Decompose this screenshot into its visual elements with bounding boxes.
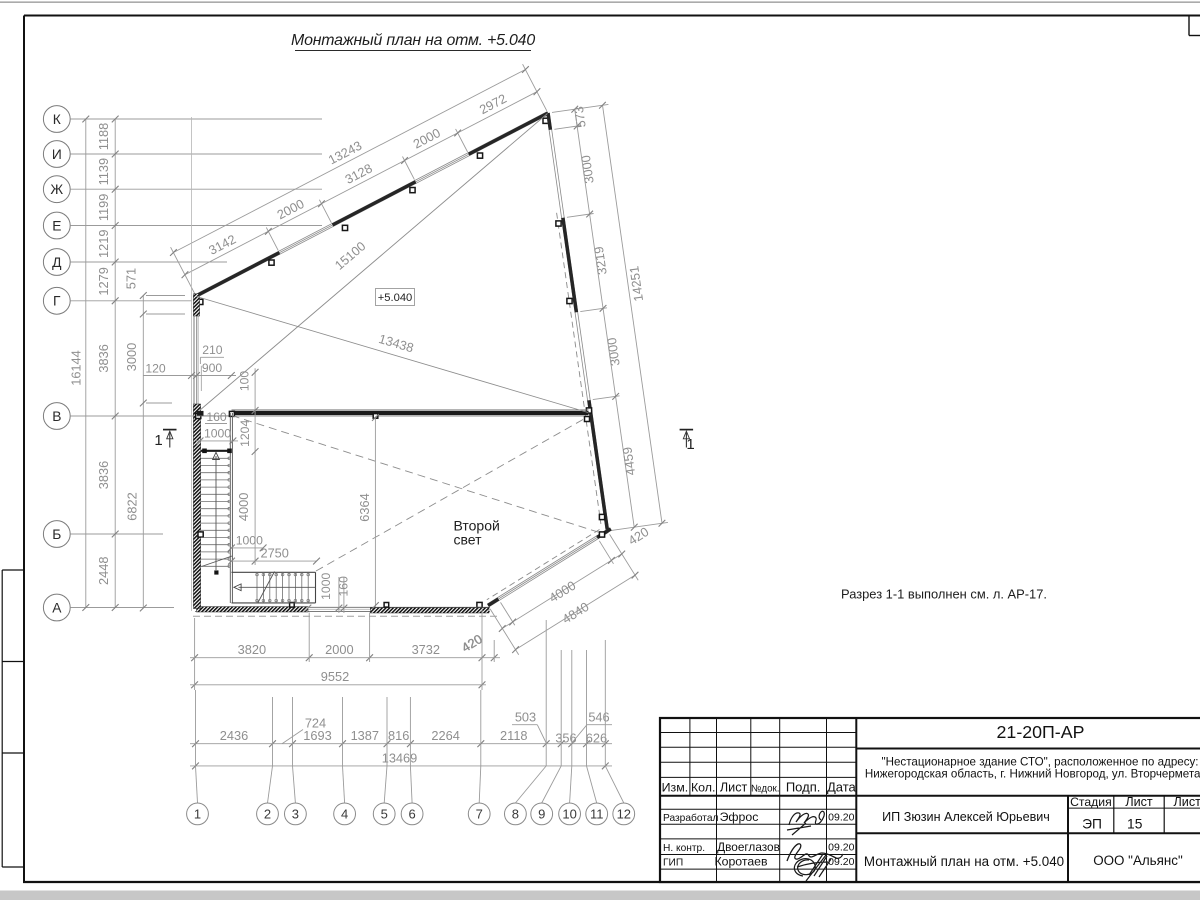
- svg-text:1: 1: [686, 436, 694, 453]
- svg-text:2264: 2264: [431, 728, 459, 743]
- svg-text:210: 210: [202, 343, 223, 357]
- svg-text:21-20П-АР: 21-20П-АР: [997, 722, 1085, 742]
- svg-text:К: К: [53, 112, 61, 127]
- svg-text:1279: 1279: [96, 267, 111, 295]
- svg-text:9: 9: [538, 806, 545, 821]
- svg-text:2000: 2000: [325, 642, 353, 657]
- svg-text:Нижегородская область, г. Нижн: Нижегородская область, г. Нижний Новгоро…: [865, 768, 1200, 781]
- svg-text:356: 356: [555, 731, 576, 746]
- svg-text:3836: 3836: [96, 344, 111, 372]
- svg-text:Разрез 1-1 выполнен см. л. АР-: Разрез 1-1 выполнен см. л. АР-17.: [841, 587, 1047, 602]
- svg-text:6: 6: [408, 806, 415, 821]
- svg-text:2118: 2118: [500, 728, 528, 743]
- svg-text:свет: свет: [454, 532, 483, 548]
- svg-text:И: И: [52, 147, 62, 162]
- svg-text:1204: 1204: [238, 420, 252, 447]
- svg-text:ЭП: ЭП: [1082, 817, 1102, 832]
- svg-text:Листов: Листов: [1174, 795, 1200, 809]
- svg-text:Эфрос: Эфрос: [720, 810, 759, 824]
- svg-text:160: 160: [206, 410, 227, 424]
- svg-text:В: В: [52, 409, 61, 424]
- svg-text:9552: 9552: [321, 669, 349, 684]
- svg-text:ГИП: ГИП: [663, 858, 683, 869]
- svg-text:1: 1: [194, 806, 201, 821]
- svg-text:1000: 1000: [204, 426, 231, 440]
- svg-text:Монтажный план на отм. +5.040: Монтажный план на отм. +5.040: [291, 32, 535, 49]
- svg-text:15: 15: [1127, 817, 1143, 832]
- svg-text:1188: 1188: [96, 123, 111, 151]
- svg-text:1387: 1387: [351, 728, 379, 743]
- svg-text:Изм.: Изм.: [662, 781, 689, 795]
- svg-text:724: 724: [305, 716, 326, 731]
- svg-text:Ж: Ж: [50, 182, 63, 197]
- svg-text:Лист: Лист: [1125, 795, 1153, 809]
- svg-text:1: 1: [154, 432, 162, 449]
- svg-text:503: 503: [515, 709, 536, 724]
- svg-text:120: 120: [145, 362, 166, 376]
- svg-text:2: 2: [264, 806, 271, 821]
- svg-text:2448: 2448: [96, 557, 111, 585]
- svg-text:573: 573: [571, 105, 589, 128]
- svg-text:Разработал: Разработал: [663, 812, 719, 824]
- svg-text:Кол.: Кол.: [691, 781, 716, 795]
- svg-text:12: 12: [617, 806, 631, 821]
- svg-text:3000: 3000: [124, 343, 139, 371]
- svg-text:4: 4: [341, 806, 348, 821]
- svg-text:7: 7: [476, 806, 483, 821]
- svg-text:8: 8: [512, 806, 519, 821]
- svg-text:6822: 6822: [125, 492, 140, 520]
- svg-text:ИП Зюзин Алексей Юрьевич: ИП Зюзин Алексей Юрьевич: [882, 810, 1050, 824]
- svg-text:5: 5: [381, 806, 388, 821]
- svg-text:160: 160: [337, 576, 351, 597]
- svg-text:Д: Д: [52, 255, 62, 270]
- svg-text:571: 571: [124, 268, 139, 289]
- svg-text:1000: 1000: [319, 573, 333, 600]
- svg-text:Стадия: Стадия: [1070, 795, 1112, 809]
- svg-text:09.20: 09.20: [828, 842, 854, 854]
- svg-text:10: 10: [562, 806, 576, 821]
- svg-text:4000: 4000: [236, 493, 251, 521]
- svg-text:А: А: [52, 600, 62, 615]
- svg-text:ООО "Альянс": ООО "Альянс": [1093, 853, 1183, 868]
- svg-text:1139: 1139: [96, 158, 111, 186]
- svg-text:3732: 3732: [412, 642, 440, 657]
- svg-text:Подп.: Подп.: [786, 780, 821, 795]
- svg-text:2436: 2436: [220, 728, 248, 743]
- svg-text:09.20: 09.20: [828, 811, 854, 823]
- svg-text:626: 626: [586, 730, 607, 745]
- svg-text:6364: 6364: [357, 493, 372, 521]
- svg-text:Е: Е: [52, 218, 61, 233]
- svg-text:3836: 3836: [96, 461, 111, 489]
- svg-text:100: 100: [237, 371, 251, 392]
- svg-text:3: 3: [292, 806, 299, 821]
- svg-text:546: 546: [588, 709, 609, 724]
- svg-text:Н. контр.: Н. контр.: [663, 843, 705, 854]
- svg-text:816: 816: [388, 728, 409, 743]
- svg-text:Г: Г: [53, 294, 61, 309]
- svg-text:09.20: 09.20: [828, 856, 854, 868]
- svg-text:+5.040: +5.040: [378, 292, 413, 304]
- svg-text:1199: 1199: [96, 194, 111, 222]
- svg-text:Монтажный план на отм. +5.040: Монтажный план на отм. +5.040: [864, 854, 1064, 869]
- svg-text:Коротаев: Коротаев: [714, 855, 767, 869]
- svg-text:Дата: Дата: [827, 780, 857, 795]
- svg-text:1219: 1219: [96, 230, 111, 258]
- svg-text:Лист: Лист: [720, 781, 748, 795]
- svg-text:№док.: №док.: [751, 784, 780, 795]
- svg-text:"Нестационарное здание СТО", р: "Нестационарное здание СТО", расположенн…: [881, 755, 1198, 768]
- svg-text:2750: 2750: [260, 546, 288, 561]
- svg-text:Б: Б: [52, 527, 61, 542]
- svg-text:16144: 16144: [69, 350, 84, 386]
- svg-text:3820: 3820: [238, 642, 266, 657]
- svg-text:Двоеглазов: Двоеглазов: [717, 840, 780, 854]
- svg-text:11: 11: [590, 806, 604, 821]
- svg-text:900: 900: [202, 361, 223, 375]
- svg-text:1000: 1000: [236, 533, 263, 547]
